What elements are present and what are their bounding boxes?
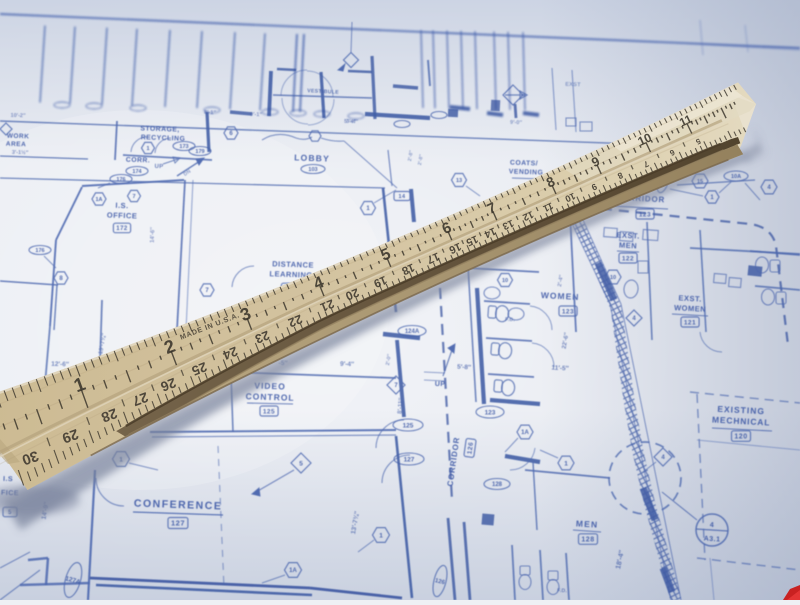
svg-text:CORR.: CORR. [126, 157, 151, 165]
svg-text:1: 1 [379, 532, 383, 539]
svg-text:EXST: EXST [565, 82, 581, 89]
svg-text:10: 10 [502, 278, 508, 284]
svg-text:1A: 1A [95, 197, 102, 203]
svg-text:121: 121 [684, 319, 696, 326]
svg-text:10′-2″: 10′-2″ [10, 113, 26, 120]
svg-text:STORAGE,: STORAGE, [140, 125, 180, 133]
svg-text:EXST.: EXST. [678, 293, 702, 303]
svg-text:172: 172 [116, 226, 128, 232]
svg-text:128: 128 [581, 537, 594, 544]
svg-text:WOMEN: WOMEN [674, 303, 707, 314]
svg-text:103: 103 [308, 167, 317, 173]
svg-text:123: 123 [562, 308, 574, 315]
svg-text:176: 176 [35, 248, 44, 254]
svg-text:10A: 10A [731, 174, 741, 180]
svg-text:122: 122 [622, 255, 634, 262]
svg-text:AREA: AREA [6, 141, 27, 149]
svg-text:MEN: MEN [619, 241, 638, 251]
svg-text:3′-1½″: 3′-1½″ [12, 149, 29, 157]
svg-text:14: 14 [398, 194, 406, 200]
svg-text:DISTANCE: DISTANCE [272, 259, 314, 269]
svg-text:I.S.: I.S. [115, 201, 129, 210]
svg-text:F.D.: F.D. [557, 588, 568, 595]
svg-text:11′-5″: 11′-5″ [551, 365, 569, 373]
svg-text:179: 179 [195, 149, 204, 155]
svg-text:MEN: MEN [576, 518, 599, 529]
svg-text:123: 123 [485, 409, 496, 416]
svg-text:5: 5 [299, 460, 303, 467]
svg-text:14′-6″: 14′-6″ [150, 227, 157, 243]
svg-text:173: 173 [179, 144, 188, 150]
svg-text:127: 127 [404, 456, 415, 463]
svg-text:I.S: I.S [3, 476, 13, 483]
svg-text:4: 4 [710, 522, 715, 529]
svg-text:OFFICE: OFFICE [107, 210, 138, 220]
svg-text:A3.1: A3.1 [704, 536, 721, 544]
svg-text:1: 1 [146, 146, 149, 152]
svg-text:176: 176 [116, 177, 125, 183]
svg-text:124A: 124A [405, 329, 420, 335]
svg-text:1A: 1A [289, 568, 297, 574]
svg-text:9′-0″: 9′-0″ [510, 120, 522, 126]
svg-text:7: 7 [132, 194, 135, 200]
svg-text:1A: 1A [521, 430, 529, 436]
svg-text:125: 125 [263, 408, 275, 415]
svg-text:COATS/: COATS/ [510, 160, 538, 168]
svg-text:174: 174 [132, 169, 142, 175]
svg-text:VENDING: VENDING [509, 168, 544, 176]
svg-text:125: 125 [403, 422, 414, 429]
svg-text:120: 120 [734, 434, 747, 441]
svg-text:3′-4″: 3′-4″ [346, 119, 358, 125]
svg-text:12′-6″: 12′-6″ [51, 361, 69, 369]
svg-text:127: 127 [171, 519, 185, 528]
svg-text:9′-4″: 9′-4″ [340, 361, 354, 368]
svg-text:LOBBY: LOBBY [294, 152, 330, 163]
svg-text:EXST.: EXST. [616, 230, 640, 240]
svg-text:5′-8″: 5′-8″ [457, 364, 471, 372]
svg-text:13: 13 [456, 178, 462, 184]
svg-text:10: 10 [610, 275, 616, 281]
svg-text:WORK: WORK [7, 133, 30, 141]
svg-text:128: 128 [492, 482, 503, 488]
svg-text:CONTROL: CONTROL [245, 391, 294, 403]
svg-text:UP: UP [435, 381, 446, 388]
svg-text:1: 1 [564, 460, 568, 467]
svg-text:UP: UP [154, 164, 163, 170]
